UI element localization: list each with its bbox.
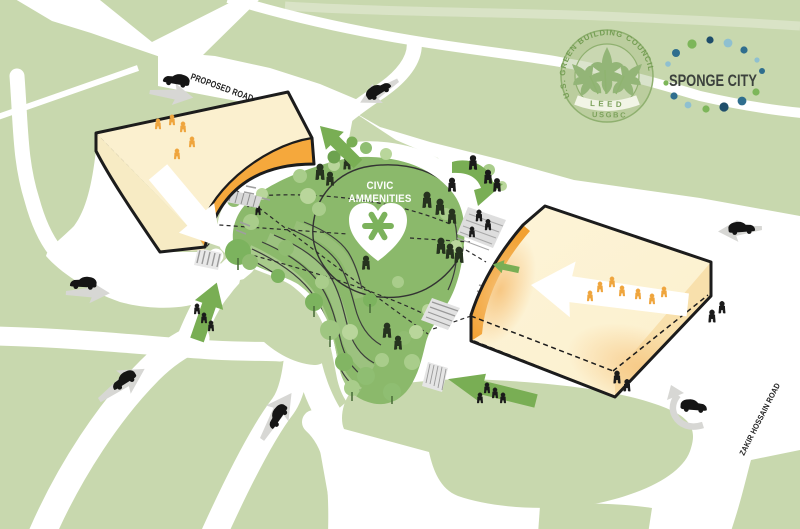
svg-text:CIVIC: CIVIC	[367, 180, 394, 192]
svg-text:USGBC: USGBC	[592, 110, 627, 120]
svg-text:AMMENITIES: AMMENITIES	[349, 193, 412, 205]
svg-text:LEED: LEED	[590, 99, 625, 109]
svg-text:SPONGE CITY: SPONGE CITY	[669, 71, 757, 90]
